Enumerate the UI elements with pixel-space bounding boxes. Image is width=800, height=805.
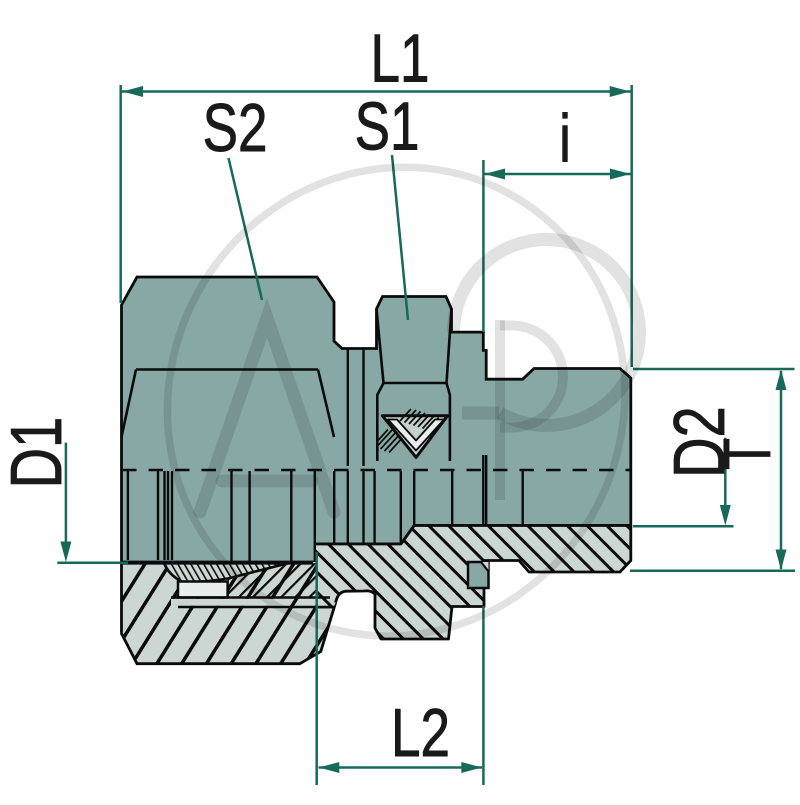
svg-text:L1: L1 bbox=[371, 20, 430, 96]
svg-text:D1: D1 bbox=[0, 417, 77, 489]
svg-text:i: i bbox=[559, 100, 571, 176]
svg-text:S2: S2 bbox=[203, 90, 268, 166]
svg-text:S1: S1 bbox=[355, 88, 420, 164]
svg-text:L2: L2 bbox=[391, 695, 450, 771]
svg-text:T: T bbox=[710, 438, 785, 470]
